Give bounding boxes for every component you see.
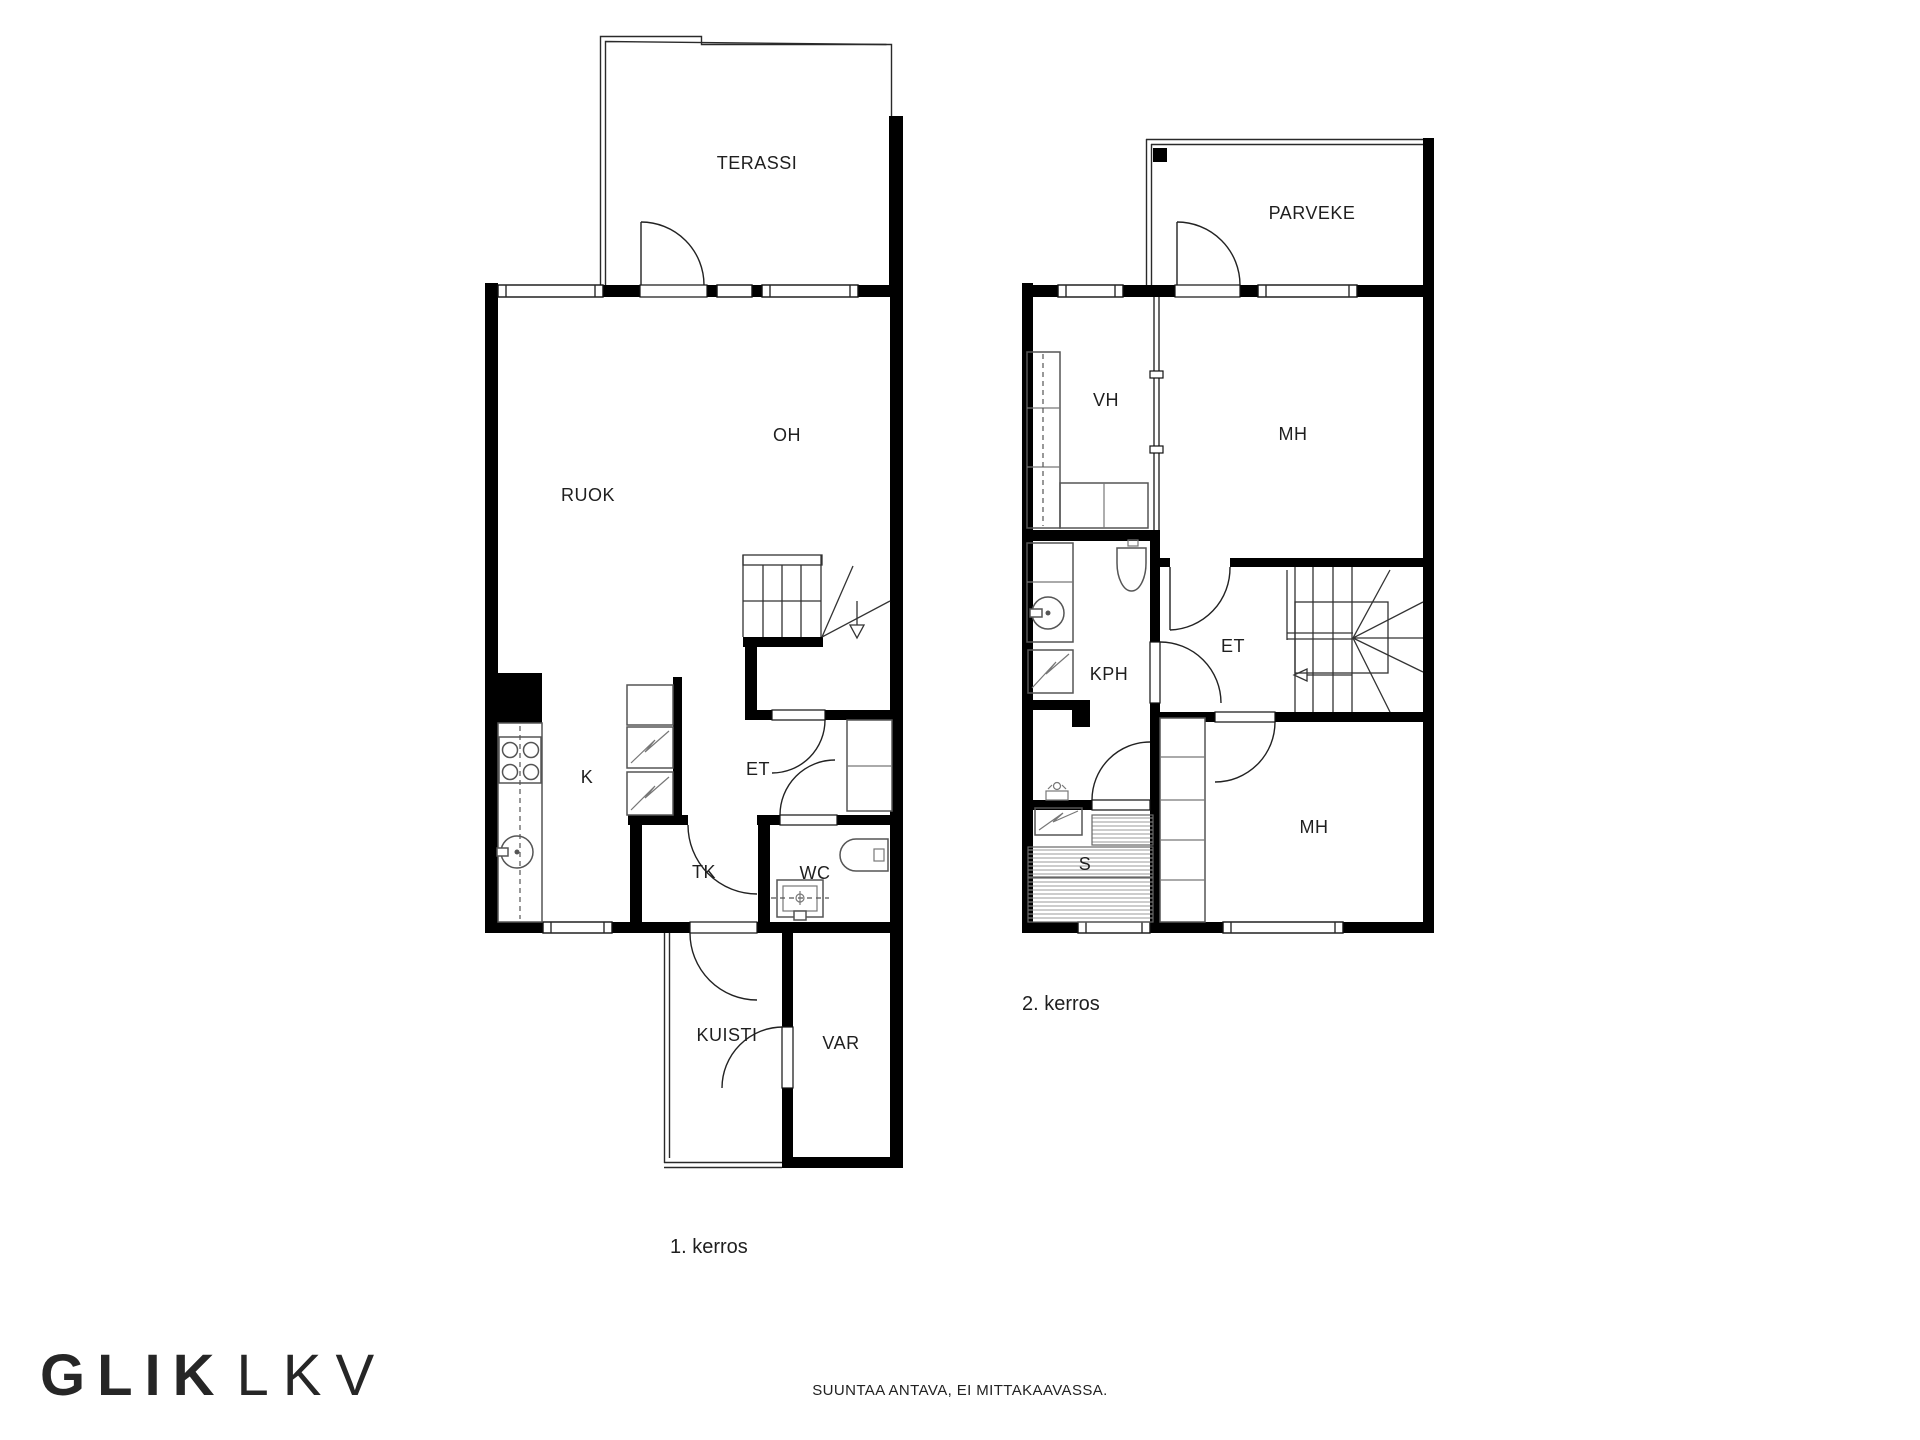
kuisti-outline — [664, 933, 782, 1168]
toilet-fixture — [840, 839, 888, 871]
window — [1258, 285, 1357, 297]
kitchen-cabinets — [627, 685, 673, 815]
sauna-bench — [1028, 878, 1153, 922]
terrace-door — [640, 222, 707, 297]
floor2-plan: PARVEKE VH MH KPH ET S MH 2. kerros — [1022, 138, 1434, 1015]
window — [1078, 922, 1150, 933]
tk-door — [688, 825, 757, 894]
room-label-s: S — [1079, 854, 1092, 874]
room-label-parveke: PARVEKE — [1269, 203, 1356, 223]
sauna-door — [1092, 742, 1150, 810]
toilet-fixture — [1117, 540, 1146, 591]
room-label-vh: VH — [1093, 390, 1119, 410]
window — [717, 285, 752, 297]
balcony-post — [1153, 148, 1167, 162]
sauna-bench — [1092, 815, 1153, 845]
vh-cabinets — [1027, 352, 1148, 528]
floor1-plan: TERASSI OH RUOK K ET TK WC KUISTI VAR 1.… — [485, 37, 903, 1259]
room-label-var: VAR — [822, 1033, 859, 1053]
room-label-et1: ET — [746, 759, 770, 779]
washbasin-fixture — [771, 880, 829, 920]
balcony-door — [1175, 222, 1240, 297]
window — [1058, 285, 1123, 297]
room-label-tk: TK — [692, 862, 716, 882]
window — [543, 922, 612, 933]
shower-fixture — [1046, 783, 1068, 801]
room-label-ruok: RUOK — [561, 485, 615, 505]
vh-partition — [1150, 297, 1163, 530]
room-label-terassi: TERASSI — [717, 153, 798, 173]
et-closet — [847, 720, 892, 811]
floorplan-drawing: TERASSI OH RUOK K ET TK WC KUISTI VAR 1.… — [0, 0, 1920, 1440]
floor2-stairs — [1287, 567, 1423, 712]
floor2-caption: 2. kerros — [1022, 993, 1100, 1015]
sink-fixture — [1030, 597, 1064, 629]
floor2-walls — [1022, 138, 1434, 933]
floor1-stairs — [743, 555, 890, 638]
wc-door — [780, 760, 837, 825]
floor1-windows — [498, 285, 858, 933]
window — [1223, 922, 1343, 933]
room-label-et2: ET — [1221, 636, 1245, 656]
sauna-stove-fixture — [1035, 808, 1082, 835]
room-label-kuisti: KUISTI — [696, 1025, 757, 1045]
room-label-kph: KPH — [1090, 664, 1129, 684]
kph-door — [1150, 642, 1221, 703]
mh-top-door — [1170, 567, 1230, 630]
room-label-oh: OH — [773, 425, 801, 445]
disclaimer-text: SUUNTAA ANTAVA, EI MITTAKAAVASSA. — [0, 1382, 1920, 1399]
floor1-caption: 1. kerros — [670, 1236, 748, 1258]
front-door — [690, 922, 757, 1000]
room-label-wc: WC — [800, 863, 831, 883]
room-label-mh-top: MH — [1279, 424, 1308, 444]
room-label-k: K — [581, 767, 594, 787]
room-label-mh-bottom: MH — [1300, 817, 1329, 837]
mh-bottom-door — [1215, 712, 1275, 782]
washing-machine-fixture — [1028, 650, 1073, 693]
window — [498, 285, 603, 297]
mh-wardrobe — [1160, 718, 1205, 922]
window — [762, 285, 858, 297]
floorplan-page: TERASSI OH RUOK K ET TK WC KUISTI VAR 1.… — [0, 0, 1920, 1440]
